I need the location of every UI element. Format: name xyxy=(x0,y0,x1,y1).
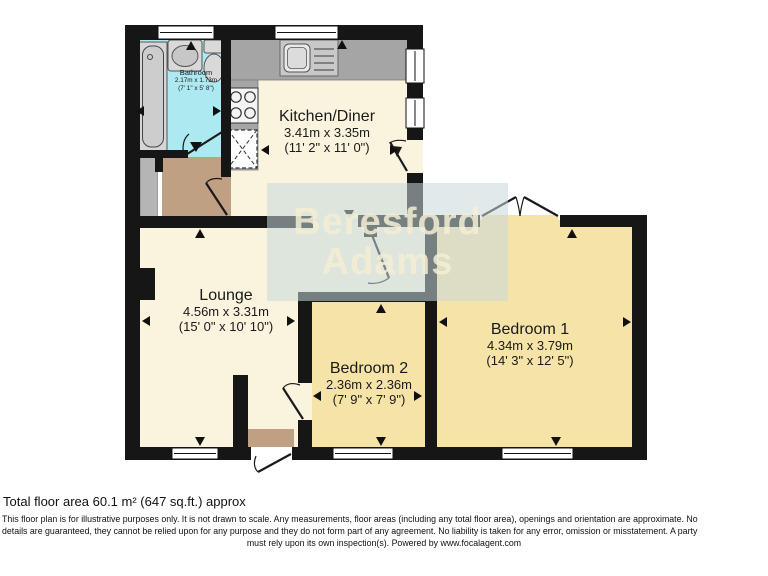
wall xyxy=(425,215,437,447)
disclaimer-line: This floor plan is for illustrative purp… xyxy=(2,514,768,524)
bathtub-inner xyxy=(143,46,164,147)
wall xyxy=(298,292,425,302)
bedroom1-floor xyxy=(430,220,635,450)
wall xyxy=(125,25,140,460)
wall xyxy=(632,215,647,460)
hall-door-opening xyxy=(221,177,231,216)
patio-double-doors-icon xyxy=(482,197,558,216)
disclaimer-line: details are guaranteed, they cannot be r… xyxy=(2,526,768,536)
floor-plan-page: Bathroom 2.17m x 1.73m (7' 1" x 5' 8") K… xyxy=(0,0,768,576)
wall xyxy=(125,268,155,300)
kitchen-door-opening xyxy=(407,140,423,173)
wall xyxy=(233,375,248,447)
disclaimer-line: must rely upon its own inspection(s). Po… xyxy=(0,538,768,548)
total-floor-area: Total floor area 60.1 m² (647 sq.ft.) ap… xyxy=(3,494,246,509)
wall xyxy=(125,216,313,228)
room-floors xyxy=(135,30,635,455)
sink-bowl-inner xyxy=(288,48,307,69)
wall xyxy=(298,302,312,383)
wall xyxy=(138,150,188,158)
hallway-floor xyxy=(162,157,222,218)
wall xyxy=(221,40,231,177)
lounge-floor xyxy=(135,226,305,450)
patio-door-opening xyxy=(482,215,558,227)
wall xyxy=(155,157,163,172)
wall xyxy=(298,420,312,447)
entry-vestibule-floor xyxy=(242,429,294,448)
floor-plan-drawing xyxy=(0,0,768,576)
bedroom2-floor xyxy=(305,295,430,450)
corridor-opening xyxy=(313,215,358,229)
wall xyxy=(358,215,480,227)
